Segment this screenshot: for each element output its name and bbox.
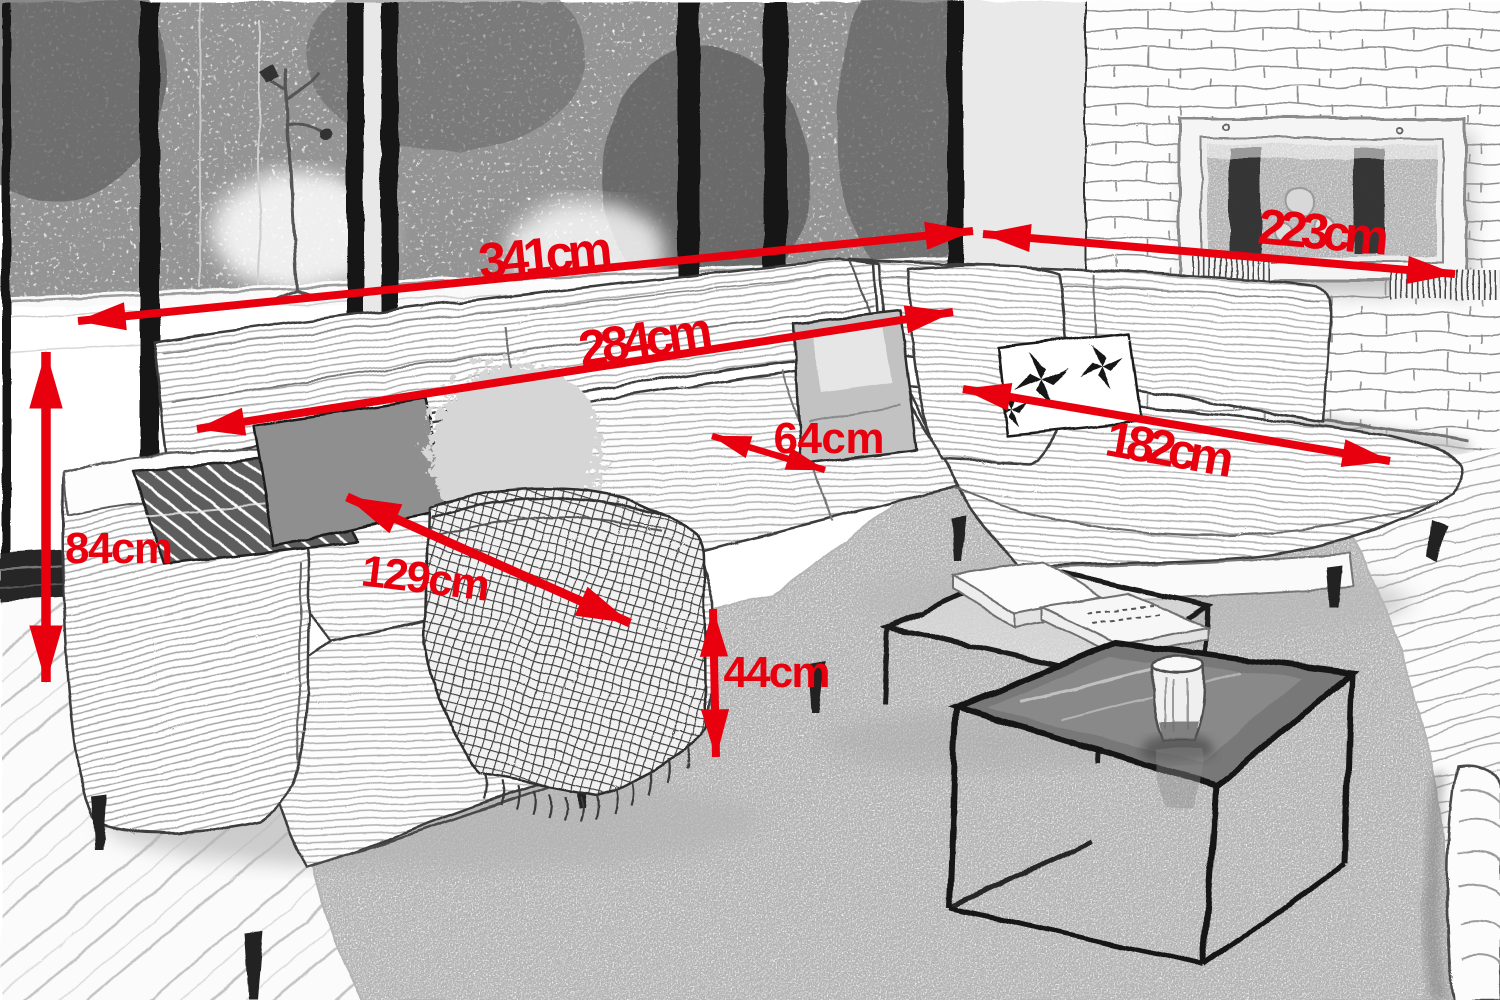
dim-right-depth-label: 223cm: [1256, 198, 1392, 266]
glass-liquid: [1158, 722, 1196, 740]
coat-hook-blob: [318, 126, 330, 138]
glass-rim: [1152, 656, 1202, 672]
armchair-arm: [1446, 763, 1500, 1000]
art-highlight: [1206, 143, 1436, 157]
blanket-body: [424, 487, 704, 794]
room-sketch: [0, 0, 1500, 1000]
dim-seat-height-label: 44cm: [724, 648, 831, 697]
armchair-fragment: [1423, 763, 1500, 1000]
sketch-scene: 341cm 284cm 223cm 64cm 182cm 84cm 129cm …: [0, 0, 1500, 1000]
drinking-glass: [1151, 656, 1202, 806]
dim-height-label: 84cm: [65, 524, 173, 573]
art-dark-bar: [1228, 146, 1260, 252]
dim-seat-depth-label: 64cm: [774, 414, 885, 463]
dimension-diagram: 341cm 284cm 223cm 64cm 182cm 84cm 129cm …: [0, 0, 1500, 1000]
glass-reflection-below: [1153, 748, 1200, 806]
dim-seat-height-arrow: [713, 609, 716, 757]
